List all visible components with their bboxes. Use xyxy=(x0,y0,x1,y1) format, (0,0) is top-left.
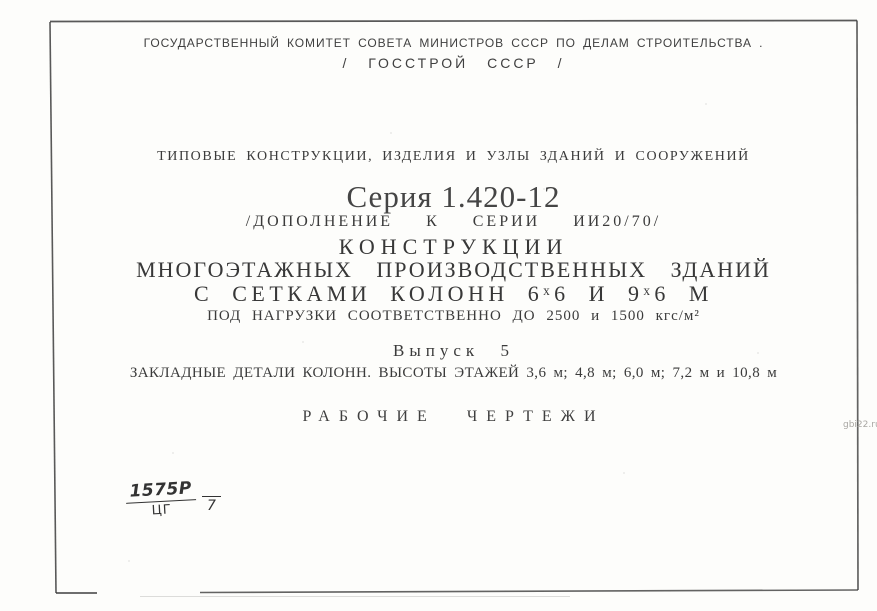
stamp-sheet-number: 7 xyxy=(202,496,221,514)
issue-contents: ЗАКЛАДНЫЕ ДЕТАЛИ КОЛОНН. ВЫСОТЫ ЭТАЖЕЙ 3… xyxy=(50,365,857,382)
series-type-line: ТИПОВЫЕ КОНСТРУКЦИИ, ИЗДЕЛИЯ И УЗЛЫ ЗДАН… xyxy=(50,149,857,165)
scan-smudge-line xyxy=(140,596,570,597)
document-type: РАБОЧИЕ ЧЕРТЕЖИ xyxy=(50,408,857,426)
title-line-3: С СЕТКАМИ КОЛОНН 6ˣ6 И 9ˣ6 М xyxy=(50,281,857,307)
loads-line: ПОД НАГРУЗКИ СООТВЕТСТВЕННО ДО 2500 и 15… xyxy=(50,308,857,325)
title-line-2: МНОГОЭТАЖНЫХ ПРОИЗВОДСТВЕННЫХ ЗДАНИЙ xyxy=(50,257,857,283)
issue-number: Выпуск 5 xyxy=(50,341,857,361)
supplement-note: /ДОПОЛНЕНИЕ К СЕРИИ ИИ20/70/ xyxy=(50,213,857,231)
watermark: gbi22.ru xyxy=(843,420,877,430)
scanned-document-page: ГОСУДАРСТВЕННЫЙ КОМИТЕТ СОВЕТА МИНИСТРОВ… xyxy=(0,0,877,611)
stamp-code: ЦГ xyxy=(126,500,197,520)
handwritten-stamp: 1575Р ЦГ 7 xyxy=(126,480,246,522)
stamp-fraction: 1575Р ЦГ xyxy=(125,478,197,520)
gosstroy-name: / ГОССТРОЙ СССР / xyxy=(50,55,857,71)
series-number: Серия 1.420-12 xyxy=(50,179,857,215)
committee-name: ГОСУДАРСТВЕННЫЙ КОМИТЕТ СОВЕТА МИНИСТРОВ… xyxy=(50,36,857,50)
